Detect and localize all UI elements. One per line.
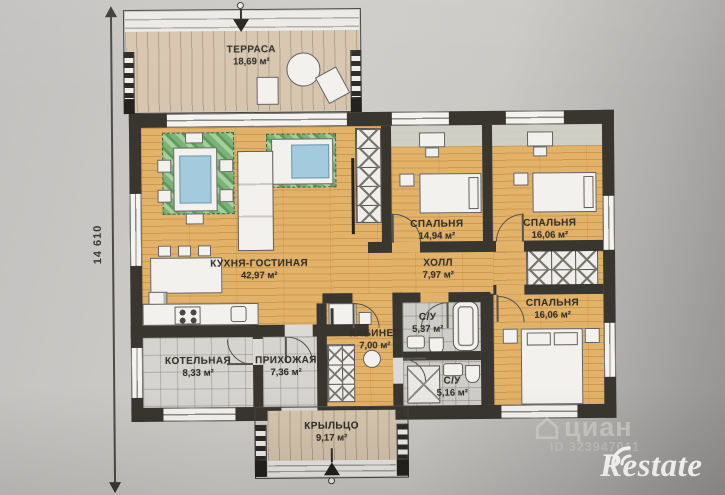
- room-area: 14,94 м²: [410, 230, 463, 243]
- terrace-entry-marker: [237, 2, 244, 9]
- interior-wall: [480, 294, 494, 405]
- porch-column-right: [397, 460, 409, 476]
- porch-entry-marker: [328, 477, 335, 484]
- porch-post-right: [397, 424, 409, 460]
- nightstand: [585, 328, 600, 343]
- door-opening: [393, 358, 403, 384]
- porch-entry-line: [331, 448, 333, 462]
- room-label-entry-hall: ПРИХОЖАЯ 7,36 м²: [255, 354, 317, 380]
- pillow: [583, 176, 593, 208]
- door-opening: [285, 324, 313, 336]
- room-label-terrace: ТЕРРАСА 18,69 м²: [227, 43, 276, 69]
- room-label-bathroom1: С/У 5,37 м²: [412, 311, 444, 337]
- interior-wall: [131, 324, 369, 338]
- chair: [185, 132, 203, 143]
- sofa: [237, 151, 274, 251]
- cian-watermark: циан: [534, 412, 633, 443]
- interior-wall: [381, 126, 392, 244]
- room-area: 7,36 м²: [255, 367, 317, 380]
- wardrobe: [327, 344, 356, 402]
- dimension-line-left: [110, 14, 116, 488]
- room-name: КУХНЯ-ГОСТИНАЯ: [210, 257, 308, 271]
- room-name: СПАЛЬНЯ: [523, 216, 576, 229]
- room-label-porch: КРЫЛЬЦО 9,17 м²: [304, 419, 359, 445]
- terrace-column-left: [124, 100, 135, 114]
- room-name: С/У: [412, 311, 443, 324]
- pillow: [527, 332, 551, 345]
- bathtub: [452, 301, 478, 351]
- terrace-entry-arrow-icon: [233, 19, 249, 32]
- chair: [157, 190, 171, 203]
- door-opening: [496, 285, 524, 295]
- window: [604, 323, 616, 377]
- room-name: КАБИНЕТ: [349, 327, 400, 340]
- agency-logo: Restate: [600, 448, 702, 485]
- door-opening: [496, 241, 524, 252]
- interior-wall: [482, 125, 493, 252]
- room-area: 9,17 м²: [304, 432, 359, 445]
- room-area: 16,06 м²: [526, 309, 579, 322]
- logo-waves-icon: [610, 444, 638, 466]
- wardrobe: [526, 249, 598, 288]
- pillow: [554, 332, 578, 345]
- nightstand: [513, 173, 528, 186]
- chair: [219, 159, 233, 172]
- room-area: 18,69 м²: [227, 56, 276, 69]
- room-label-bedroom2: СПАЛЬНЯ 16,06 м²: [523, 216, 576, 242]
- window: [506, 110, 564, 125]
- room-name: СПАЛЬНЯ: [526, 296, 579, 309]
- nightstand: [503, 329, 518, 344]
- room-name: ТЕРРАСА: [227, 43, 276, 56]
- dimension-value-left: 14 610: [92, 194, 105, 264]
- room-label-boiler: КОТЕЛЬНАЯ 8,33 м²: [165, 354, 231, 380]
- terrace-post-left: [123, 52, 134, 100]
- cian-house-icon: [534, 415, 560, 441]
- room-area: 8,33 м²: [165, 367, 231, 380]
- chair: [186, 213, 204, 224]
- room-name: КОТЕЛЬНАЯ: [165, 354, 231, 368]
- terrace-column-right: [351, 98, 362, 112]
- chair: [425, 147, 439, 157]
- nightstand: [399, 174, 414, 187]
- stove: [175, 306, 201, 324]
- door-opening: [420, 292, 448, 302]
- room-name: ПРИХОЖАЯ: [255, 354, 317, 368]
- sink: [407, 335, 425, 348]
- bar-stool: [198, 245, 211, 256]
- window: [603, 196, 615, 250]
- room-label-bedroom1: СПАЛЬНЯ 14,94 м²: [410, 217, 463, 243]
- cian-brand-text: циан: [564, 412, 633, 443]
- room-label-bedroom3: СПАЛЬНЯ 16,06 м²: [526, 296, 579, 322]
- terrace-entry-line: [240, 9, 242, 19]
- room-area: 5,37 м²: [412, 324, 443, 337]
- chair: [219, 189, 233, 202]
- room-label-bathroom2: С/У 5,16 м²: [436, 374, 468, 400]
- wardrobe: [355, 128, 382, 223]
- pillow: [468, 177, 478, 209]
- room-name: КРЫЛЬЦО: [304, 419, 359, 432]
- desk: [527, 131, 553, 146]
- room-area: 16,06 м²: [523, 229, 576, 242]
- kitchen-sink: [231, 306, 247, 322]
- bar-stool: [178, 245, 191, 256]
- porch-column-left: [255, 461, 267, 477]
- dimension-arrow-top-icon: [105, 6, 117, 17]
- room-name: СПАЛЬНЯ: [410, 217, 463, 230]
- room-area: 7,97 м²: [423, 270, 454, 283]
- window: [392, 111, 449, 125]
- terrace-post-right: [350, 50, 361, 98]
- room-name: С/У: [436, 374, 467, 387]
- dimension-arrow-bottom-icon: [109, 482, 121, 493]
- window: [130, 194, 143, 266]
- daybed-mattress: [291, 144, 329, 178]
- porch-entry-arrow-icon: [324, 462, 340, 475]
- room-area: 42,97 м²: [210, 270, 308, 283]
- room-label-office: КАБИНЕТ 7,00 м²: [349, 327, 400, 353]
- room-label-hall: ХОЛЛ 7,97 м²: [422, 257, 454, 283]
- room-area: 5,16 м²: [437, 387, 468, 400]
- room-name: ХОЛЛ: [422, 257, 453, 270]
- interior-wall: [322, 293, 352, 303]
- chair: [533, 146, 547, 156]
- window: [131, 348, 143, 398]
- room-label-kitchen-living: КУХНЯ-ГОСТИНАЯ 42,97 м²: [210, 257, 308, 283]
- interior-wall: [316, 303, 327, 406]
- terrace-round-table: [286, 52, 320, 86]
- room-area: 7,00 м²: [350, 340, 401, 353]
- floorplan-photo: ТЕРРАСА 18,69 м² КУХНЯ-ГОСТИНАЯ 42,97 м²…: [0, 0, 725, 495]
- bar-stool: [158, 246, 171, 257]
- desk: [419, 132, 445, 147]
- terrace-glass-door: [167, 112, 347, 128]
- terrace-chair: [257, 77, 279, 105]
- dining-table-glass-top: [179, 155, 211, 203]
- chair: [157, 160, 171, 173]
- porch-post-left: [255, 425, 267, 461]
- window: [163, 407, 235, 422]
